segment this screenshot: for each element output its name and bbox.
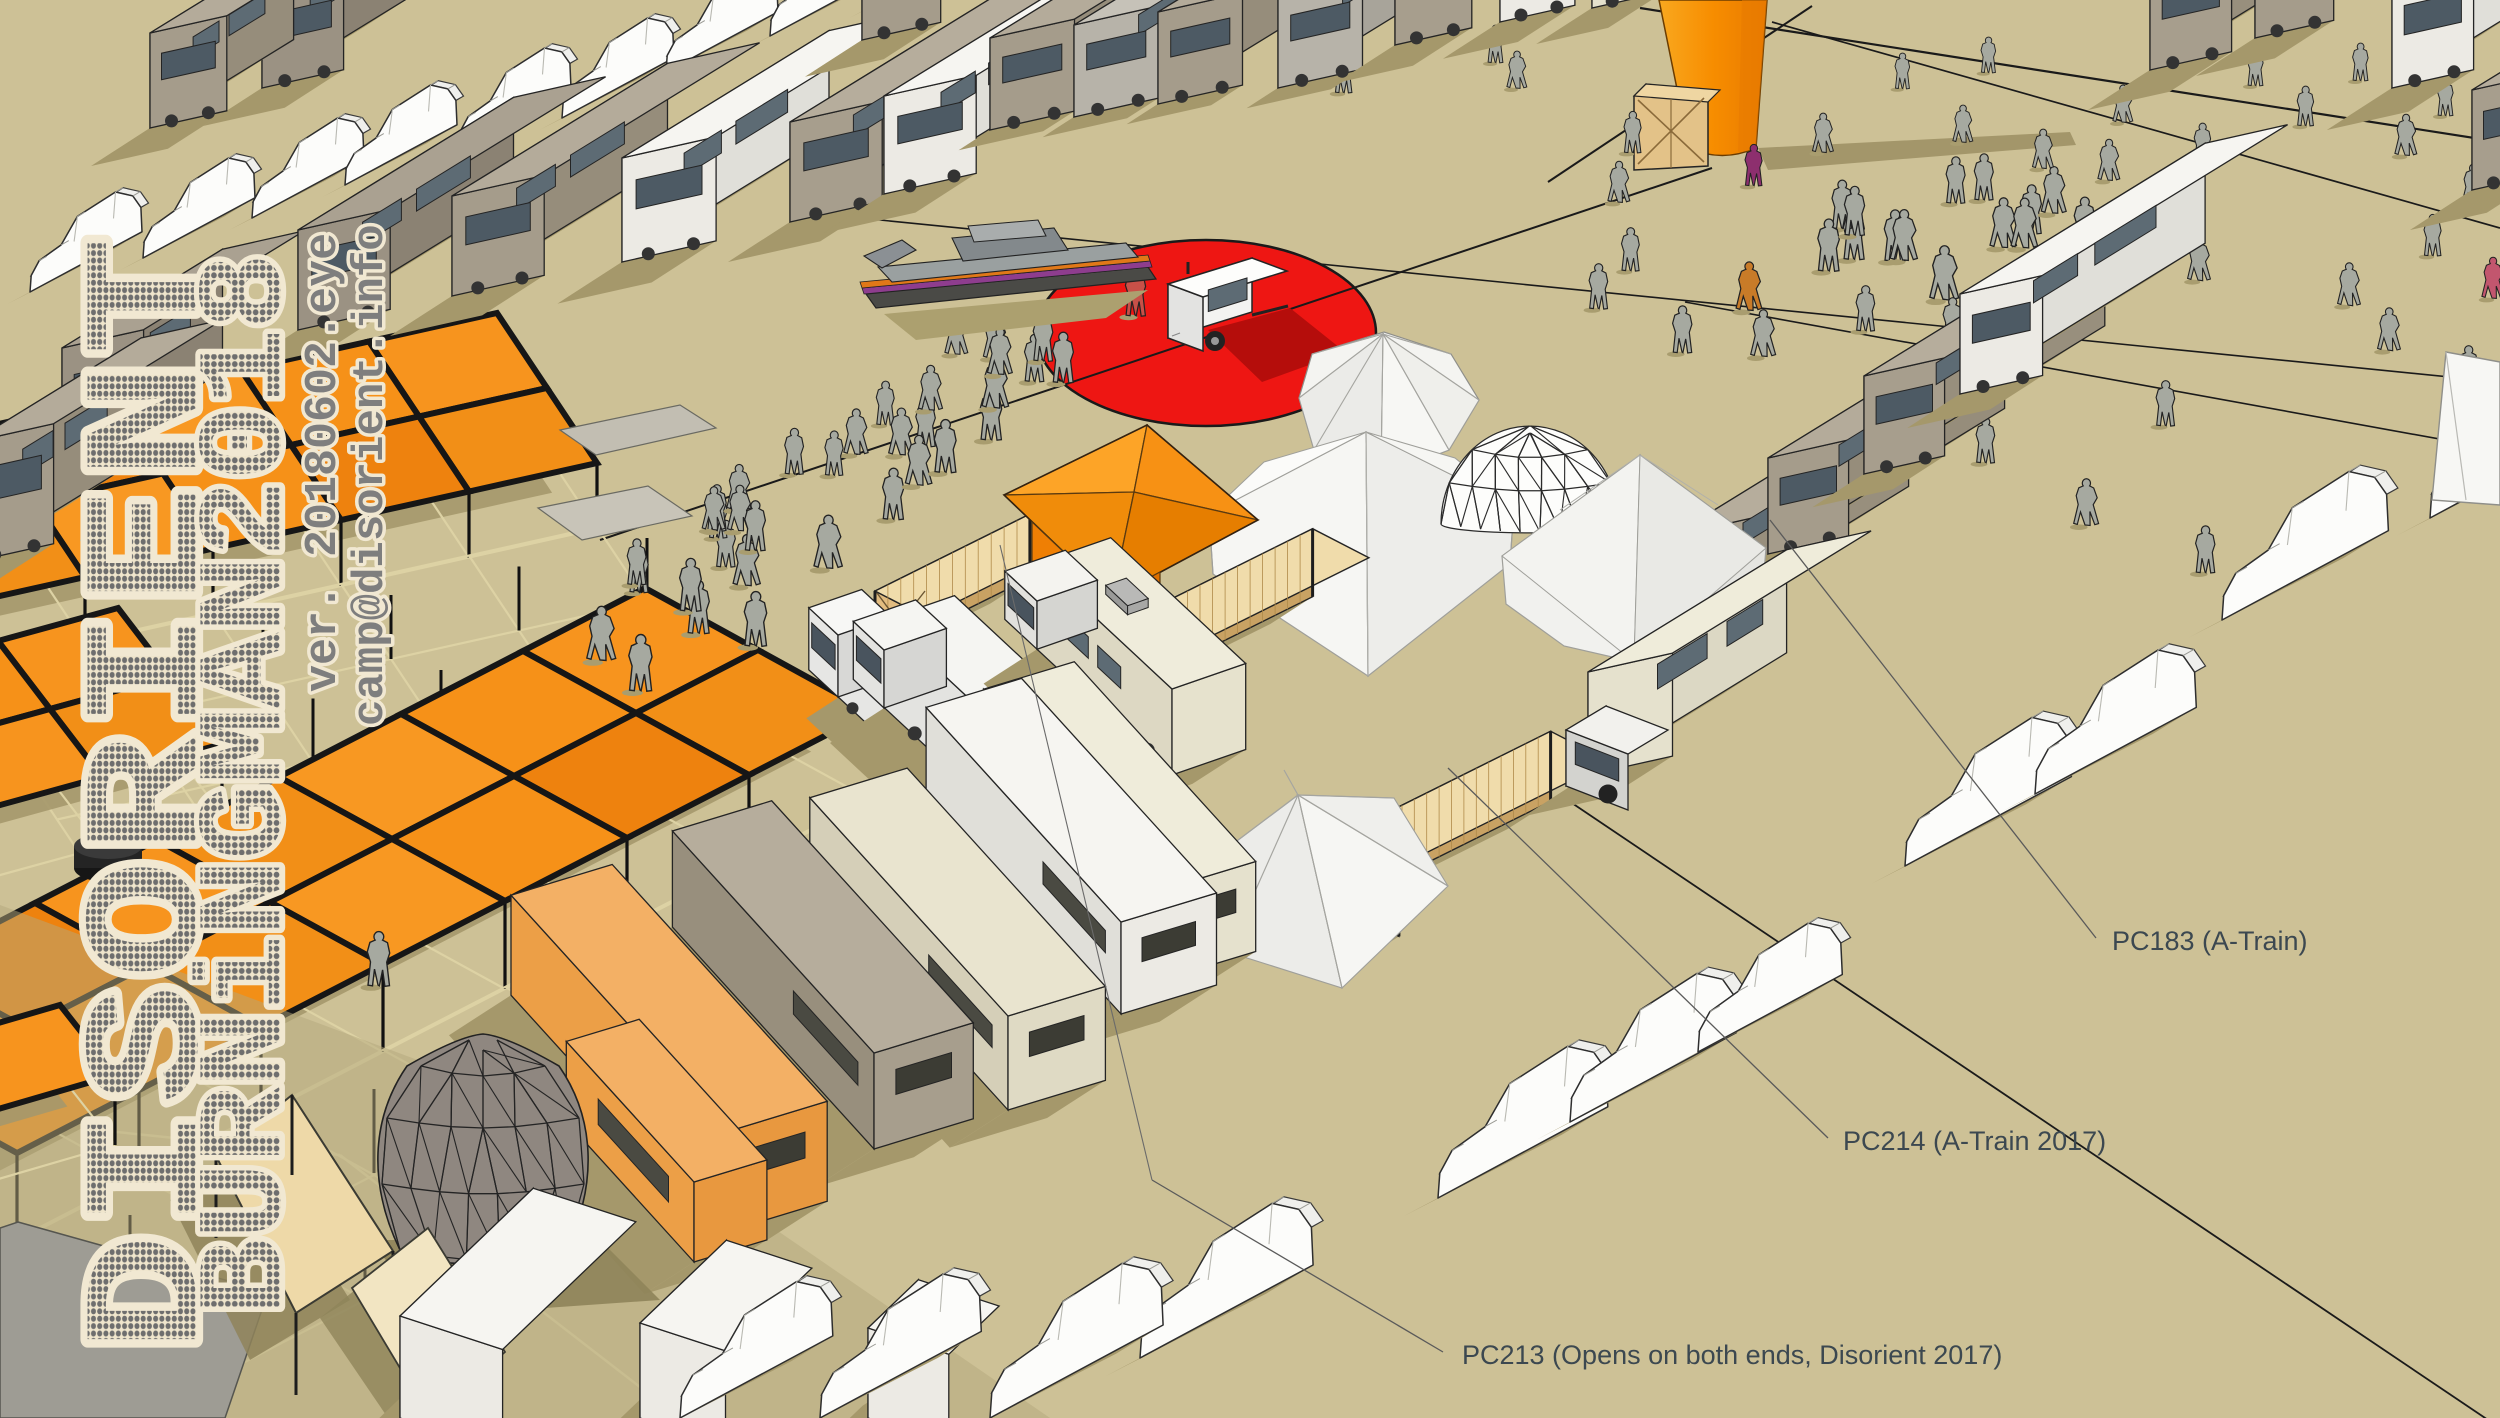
svg-text:camp@disorient.info: camp@disorient.info — [346, 224, 396, 726]
svg-text:PC183 (A-Train): PC183 (A-Train) — [2112, 926, 2308, 956]
svg-text:PC214 (A-Train 2017): PC214 (A-Train 2017) — [1843, 1126, 2106, 1156]
svg-text:BURNiNGMAN2018: BURNiNGMAN2018 — [181, 254, 317, 1315]
svg-text:PC213 (Opens on both ends, Dis: PC213 (Opens on both ends, Disorient 201… — [1462, 1340, 2002, 1370]
svg-text:ver. 20180602.eye: ver. 20180602.eye — [298, 233, 349, 692]
